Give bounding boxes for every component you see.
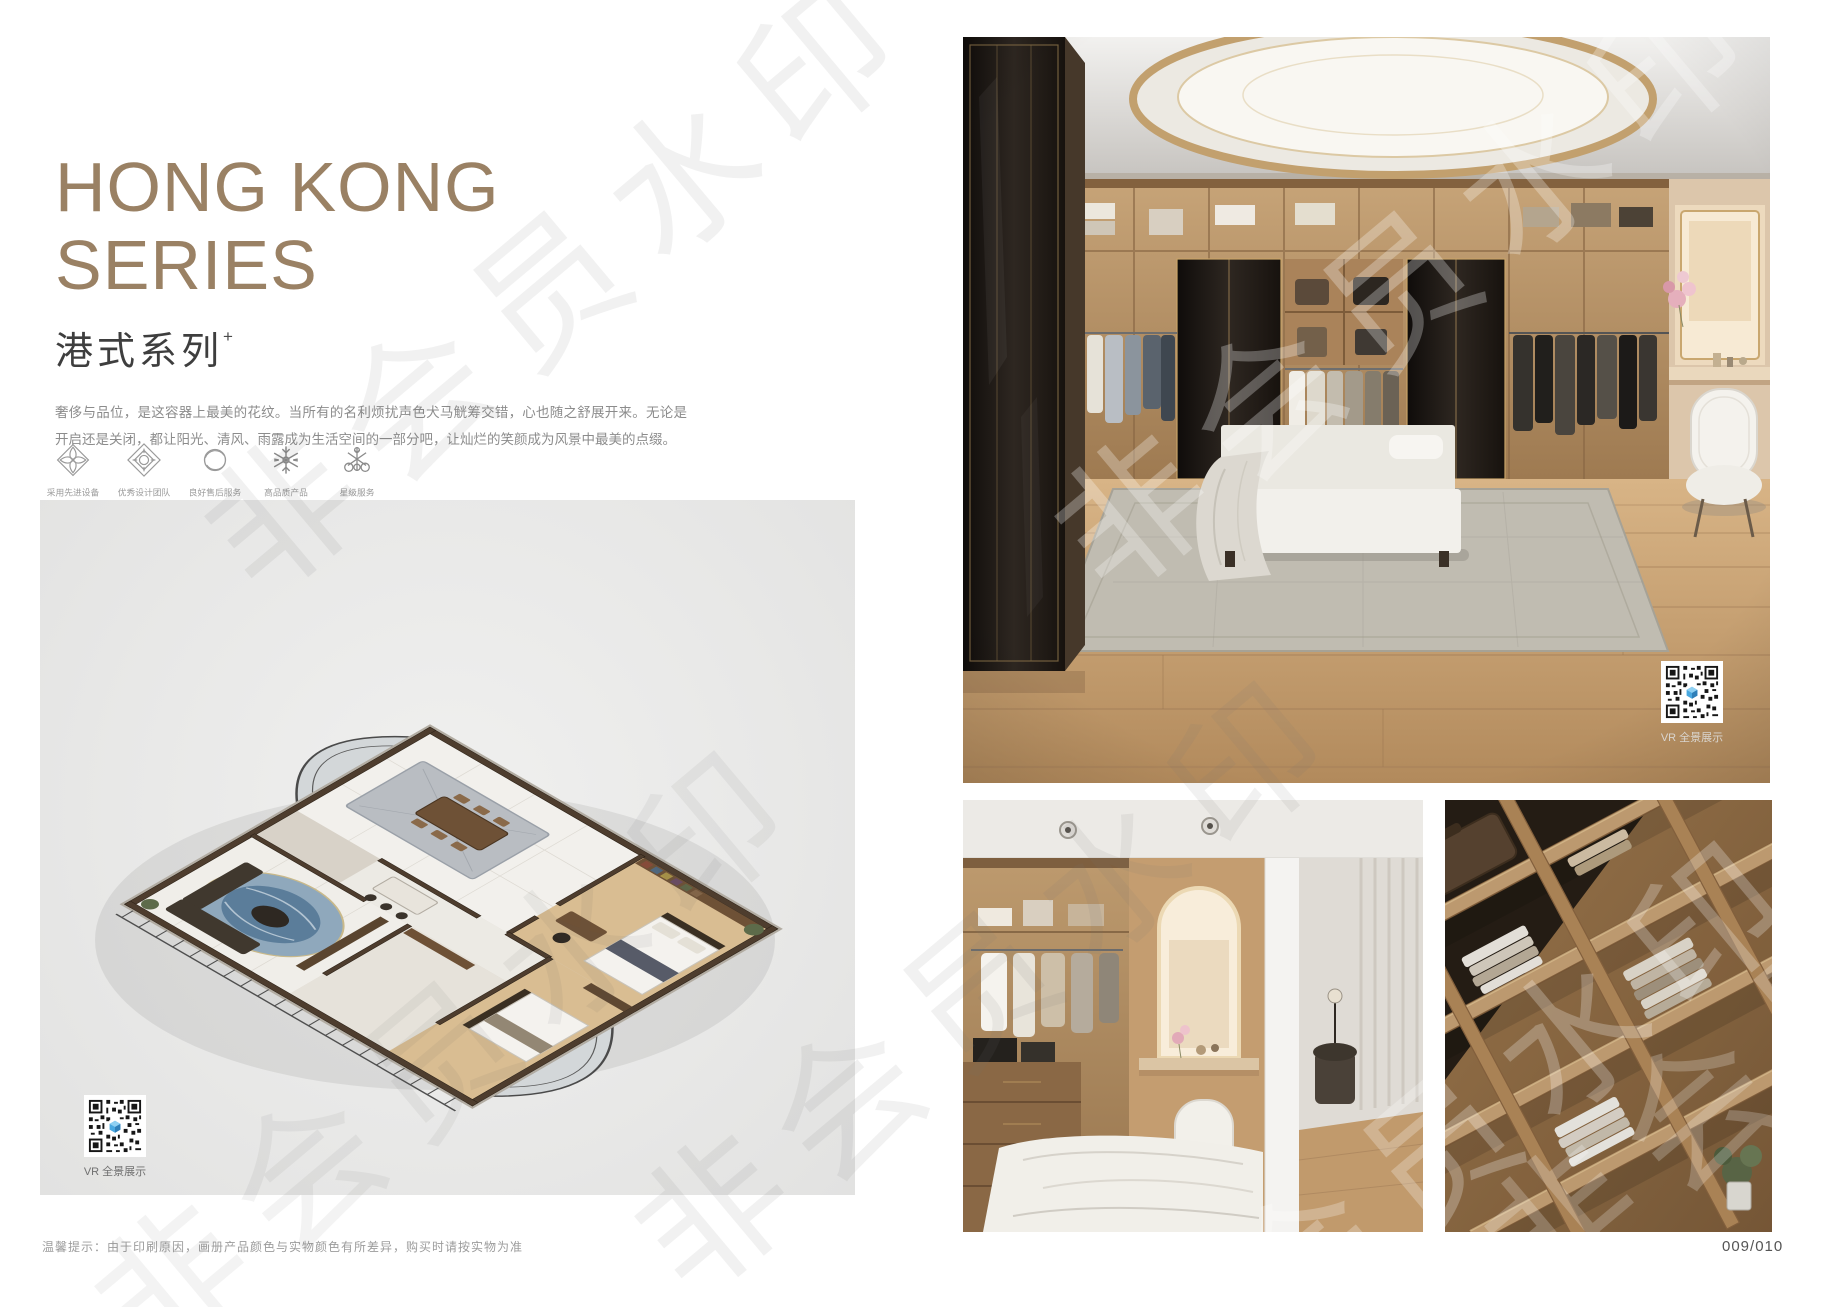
walkin-closet-illustration xyxy=(963,37,1770,783)
pinwheel-flower-icon xyxy=(53,440,93,480)
feature-label: 优秀设计团队 xyxy=(115,486,172,499)
feature-icon-row: 采用先进设备 优秀设计团队 良好售后服务 xyxy=(42,440,388,499)
qr-code-icon xyxy=(84,1095,146,1157)
feature-quality-product: 高品质产品 xyxy=(255,440,317,499)
walkin-closet-photo: VR 全景展示 xyxy=(963,37,1770,783)
dressing-area-photo xyxy=(963,800,1423,1232)
vr-panorama-label: VR 全景展示 xyxy=(80,1163,150,1179)
feature-label: 良好售后服务 xyxy=(186,486,243,499)
feature-label: 星级服务 xyxy=(328,486,385,499)
series-intro: HONG KONG SERIES 港式系列+ 奢侈与品位，是这容器上最美的花纹。… xyxy=(55,148,715,467)
series-title-line1: HONG KONG xyxy=(55,148,715,226)
hero-vr-qr: VR 全景展示 xyxy=(1657,661,1727,745)
snowflake-icon xyxy=(266,440,306,480)
page-number: 009/010 xyxy=(1722,1238,1783,1255)
feature-design-team: 优秀设计团队 xyxy=(113,440,175,499)
print-disclaimer: 温馨提示：由于印刷原因，画册产品颜色与实物颜色有所差异，购买时请按实物为准 xyxy=(42,1238,523,1255)
feature-label: 采用先进设备 xyxy=(44,486,101,499)
vr-panorama-label: VR 全景展示 xyxy=(1657,729,1727,745)
star-service-icon xyxy=(337,440,377,480)
catalog-spread-page: 非会员水印 非会员水印 非会员水印 非会员水印 非会员水印 非会员水印 HONG… xyxy=(0,0,1836,1307)
floorplan-vr-qr: VR 全景展示 xyxy=(80,1095,150,1179)
series-title-cn-text: 港式系列 xyxy=(55,331,223,373)
dressing-area-illustration xyxy=(963,800,1423,1232)
apartment-floorplan-render: VR 全景展示 xyxy=(40,500,855,1195)
shelf-detail-illustration xyxy=(1445,800,1772,1232)
ring-icon xyxy=(195,440,235,480)
floorplan-illustration xyxy=(40,500,855,1195)
feature-advanced-equipment: 采用先进设备 xyxy=(42,440,104,499)
feature-star-service: 星级服务 xyxy=(326,440,388,499)
diamond-lattice-icon xyxy=(124,440,164,480)
series-title-line2: SERIES xyxy=(55,226,715,304)
series-title-superscript: + xyxy=(223,327,233,346)
series-title-cn: 港式系列+ xyxy=(55,320,715,375)
feature-after-sales: 良好售后服务 xyxy=(184,440,246,499)
feature-label: 高品质产品 xyxy=(257,486,314,499)
series-title-en: HONG KONG SERIES xyxy=(55,148,715,304)
wardrobe-shelf-detail-photo xyxy=(1445,800,1772,1232)
qr-code-icon xyxy=(1661,661,1723,723)
